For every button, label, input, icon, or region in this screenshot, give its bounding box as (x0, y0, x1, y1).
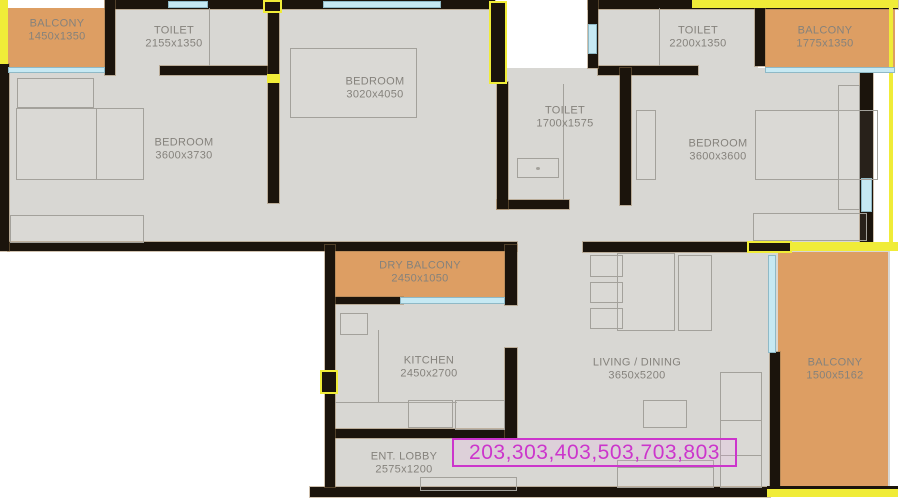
column-marker (267, 74, 280, 83)
wardrobe (838, 85, 860, 210)
window (588, 24, 597, 54)
dresser (753, 213, 867, 241)
room-name: KITCHEN (400, 354, 457, 367)
room-name: BEDROOM (346, 75, 405, 88)
coffee-table (643, 400, 687, 428)
room-dims: 2200x1350 (669, 37, 726, 50)
room-label-balcony-top-right: BALCONY 1775x1350 (796, 24, 853, 49)
room-dims: 1500x5162 (806, 369, 863, 382)
wardrobe (17, 78, 94, 108)
room-dims: 3650x5200 (593, 369, 681, 382)
room-label-dry-balcony: DRY BALCONY 2450x1050 (379, 259, 461, 284)
dining-table (617, 253, 675, 331)
bed (16, 108, 144, 180)
room-label-bedroom-right: BEDROOM 3600x3600 (689, 137, 748, 162)
unit-numbers-annotation: 203,303,403,503,703,803 (452, 438, 737, 467)
room-name: BEDROOM (689, 137, 748, 150)
window (765, 67, 895, 73)
bed-divider-line (96, 108, 97, 180)
wall (335, 297, 403, 304)
wall (583, 242, 773, 252)
wardrobe (636, 110, 656, 180)
window (168, 1, 208, 8)
wall (0, 64, 9, 251)
kitchen-counter-line (378, 330, 379, 402)
tv-unit (720, 372, 762, 488)
wall (497, 82, 508, 209)
window (8, 67, 105, 73)
kitchen-platform (455, 400, 505, 430)
wall (160, 66, 278, 75)
room-label-bedroom-left: BEDROOM 3600x3730 (155, 136, 214, 161)
wall (325, 245, 335, 487)
wall (8, 242, 517, 251)
room-name: TOILET (669, 24, 726, 37)
column-marker (692, 0, 898, 8)
room-dims: 1450x1350 (28, 30, 85, 43)
room-label-kitchen: KITCHEN 2450x2700 (400, 354, 457, 379)
window (400, 297, 505, 304)
kitchen-platform (408, 400, 453, 428)
room-label-toilet-top-left: TOILET 2155x1350 (145, 24, 202, 49)
partition-line (563, 84, 564, 200)
column-marker (320, 370, 338, 394)
room-name: ENT. LOBBY (371, 450, 438, 463)
room-dims: 1700x1575 (536, 117, 593, 130)
partition-line (659, 8, 660, 66)
wall (268, 0, 279, 203)
sofa-back-line (617, 467, 714, 468)
column-marker (747, 241, 792, 253)
window (861, 178, 872, 212)
wash-basin (517, 158, 559, 178)
room-label-bedroom-top: BEDROOM 3020x4050 (346, 75, 405, 100)
room-label-entrance-lobby: ENT. LOBBY 2575x1200 (371, 450, 438, 475)
room-dims: 3600x3600 (689, 150, 748, 163)
column-marker (263, 0, 282, 13)
column-marker (767, 486, 898, 497)
room-dims: 2450x1050 (379, 272, 461, 285)
room-name: BALCONY (806, 356, 863, 369)
chair (590, 255, 623, 277)
door-mat (420, 477, 517, 491)
column-marker (489, 1, 507, 84)
wall (620, 68, 631, 205)
window (768, 255, 776, 353)
wall (770, 352, 780, 487)
wall (505, 348, 517, 438)
room-name: DRY BALCONY (379, 259, 461, 272)
wall (755, 0, 765, 66)
tv-unit-shelf-line (720, 420, 762, 421)
room-label-living-dining: LIVING / DINING 3650x5200 (593, 356, 681, 381)
floor-plan-canvas: BALCONY 1450x1350 TOILET 2155x1350 BEDRO… (0, 0, 900, 500)
room-name: BEDROOM (155, 136, 214, 149)
room-label-toilet-top-right: TOILET 2200x1350 (669, 24, 726, 49)
room-dims: 2155x1350 (145, 37, 202, 50)
room-label-balcony-right: BALCONY 1500x5162 (806, 356, 863, 381)
wall (505, 245, 517, 305)
room-dims: 2450x2700 (400, 367, 457, 380)
room-dims: 2575x1200 (371, 463, 438, 476)
kitchen-sink (340, 313, 368, 335)
wall (598, 66, 698, 75)
room-dims: 1775x1350 (796, 37, 853, 50)
column-marker (0, 0, 8, 64)
chair (590, 308, 623, 329)
room-name: BALCONY (28, 17, 85, 30)
column-marker (792, 242, 898, 251)
basin-tap (536, 167, 540, 170)
room-name: BALCONY (796, 24, 853, 37)
dresser (10, 215, 144, 243)
wall (330, 429, 512, 438)
bench (678, 255, 712, 331)
partition-line (209, 8, 210, 66)
room-label-toilet-middle: TOILET 1700x1575 (536, 104, 593, 129)
room-name: TOILET (145, 24, 202, 37)
room-label-balcony-top-left: BALCONY 1450x1350 (28, 17, 85, 42)
room-name: TOILET (536, 104, 593, 117)
wall (105, 0, 115, 75)
room-dims: 3600x3730 (155, 149, 214, 162)
wall (310, 487, 770, 497)
room-name: LIVING / DINING (593, 356, 681, 369)
chair (590, 282, 623, 303)
room-dims: 3020x4050 (346, 88, 405, 101)
column-marker (889, 2, 893, 242)
window (323, 1, 441, 8)
